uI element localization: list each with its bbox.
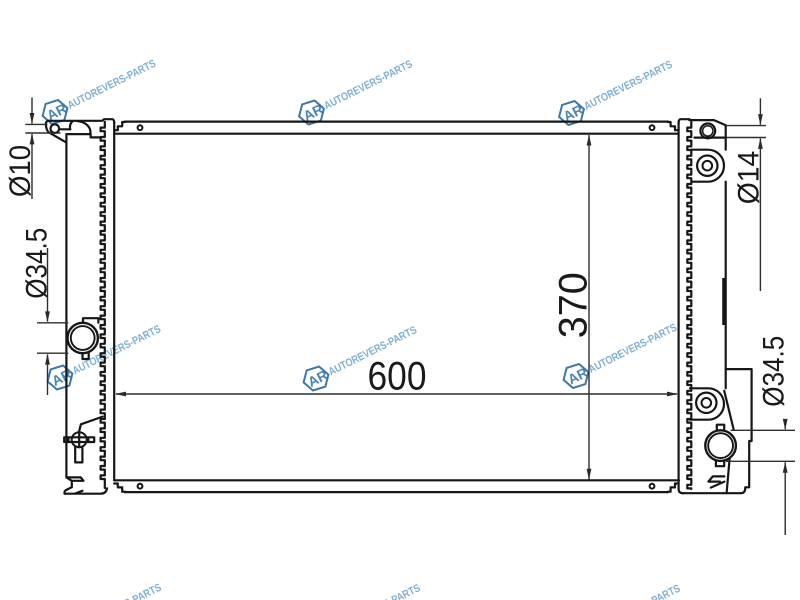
svg-text:600: 600	[368, 355, 427, 399]
svg-text:Ø10: Ø10	[4, 145, 37, 197]
svg-text:Ø14: Ø14	[733, 151, 766, 205]
svg-text:Ø34.5: Ø34.5	[758, 336, 791, 407]
svg-text:Ø34.5: Ø34.5	[21, 228, 54, 299]
svg-text:370: 370	[552, 272, 596, 338]
